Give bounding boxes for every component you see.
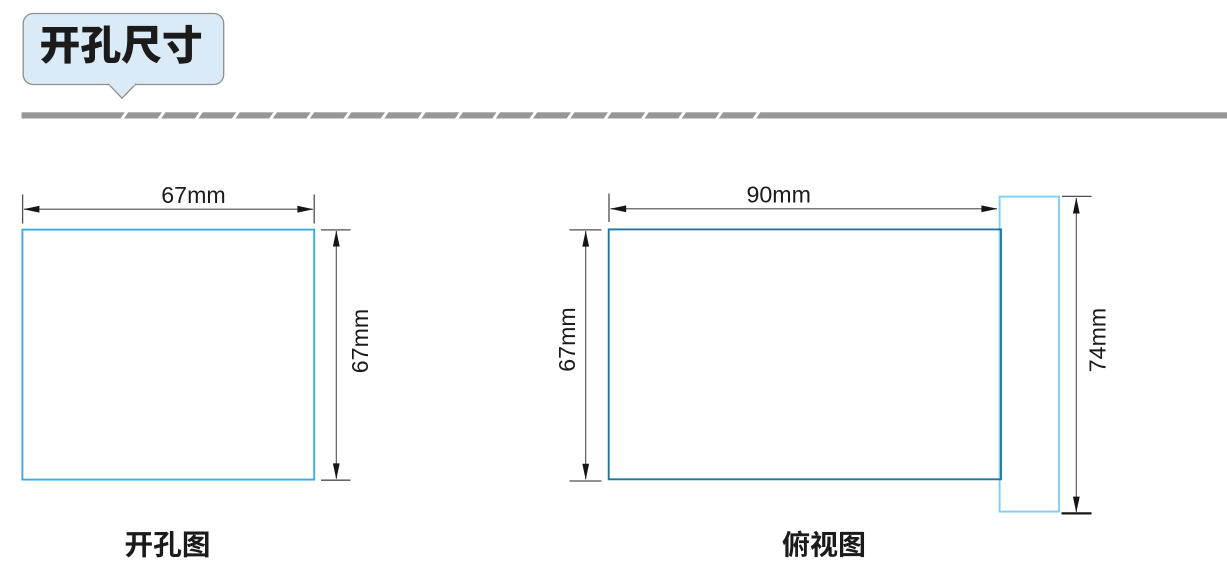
svg-text:67mm: 67mm [554,307,580,371]
svg-text:90mm: 90mm [746,182,810,208]
svg-text:74mm: 74mm [1085,308,1111,372]
svg-text:67mm: 67mm [161,182,225,208]
svg-text:67mm: 67mm [347,309,373,373]
